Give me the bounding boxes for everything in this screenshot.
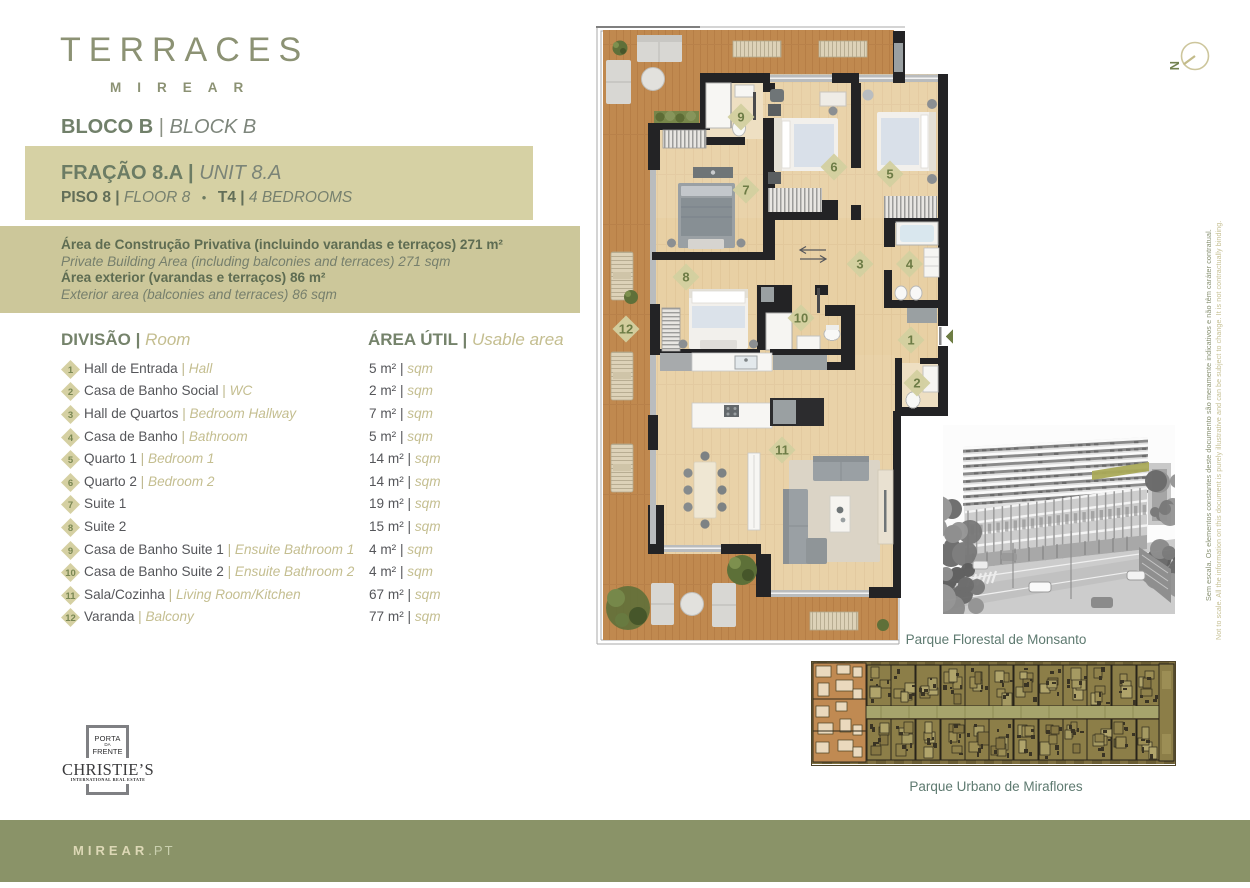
svg-text:10: 10: [794, 311, 808, 326]
svg-text:5: 5: [886, 167, 893, 182]
svg-text:10: 10: [65, 568, 76, 579]
svg-text:4: 4: [906, 257, 914, 272]
svg-text:12: 12: [65, 613, 76, 624]
svg-text:8: 8: [68, 523, 73, 534]
svg-text:12: 12: [619, 322, 633, 337]
svg-text:4: 4: [68, 433, 74, 444]
svg-text:9: 9: [68, 546, 73, 557]
svg-text:7: 7: [742, 183, 749, 198]
svg-text:1: 1: [68, 365, 74, 376]
svg-text:1: 1: [907, 333, 914, 348]
svg-text:6: 6: [68, 478, 73, 489]
svg-text:3: 3: [856, 257, 863, 272]
svg-text:8: 8: [682, 270, 689, 285]
svg-text:11: 11: [65, 591, 76, 602]
svg-text:2: 2: [913, 376, 920, 391]
svg-text:11: 11: [775, 443, 789, 458]
svg-text:2: 2: [68, 387, 73, 398]
svg-text:3: 3: [68, 410, 73, 421]
svg-text:6: 6: [830, 160, 837, 175]
svg-text:9: 9: [737, 110, 744, 125]
svg-text:7: 7: [68, 500, 73, 511]
svg-text:N: N: [1167, 61, 1182, 70]
svg-text:5: 5: [68, 455, 74, 466]
